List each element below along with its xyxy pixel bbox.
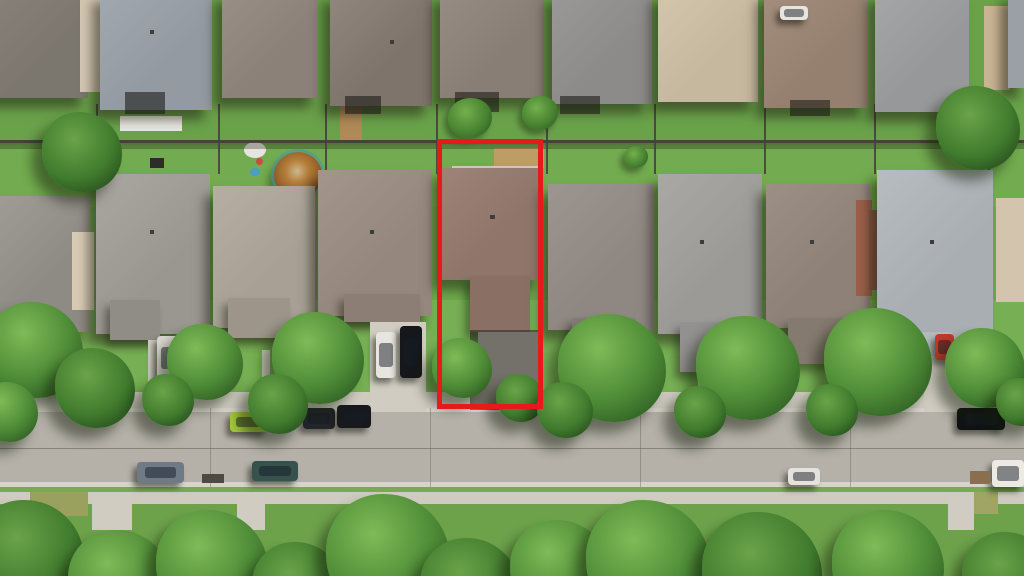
street-tree xyxy=(537,382,593,438)
house-roof-back-row xyxy=(330,0,432,106)
car-windshield xyxy=(997,466,1019,480)
side-fence xyxy=(654,104,656,174)
house-roof-back-row xyxy=(658,0,758,102)
roof-vent xyxy=(810,240,814,244)
car-windshield xyxy=(379,343,393,367)
car-dark xyxy=(303,408,335,429)
car-white-small xyxy=(788,468,820,485)
street-tree xyxy=(806,384,858,436)
car-windshield xyxy=(145,467,177,478)
house-roof-back-row xyxy=(222,0,318,98)
house-roof-back-row xyxy=(440,0,544,98)
side-fence xyxy=(874,104,876,174)
house-wall xyxy=(72,232,94,310)
car-windshield xyxy=(784,9,803,16)
car-black-suv xyxy=(337,405,371,428)
driveway-apron xyxy=(948,492,974,530)
aerial-photo xyxy=(0,0,1024,576)
roof-vent xyxy=(150,230,154,234)
yard-toy xyxy=(256,158,263,165)
car-black-driveway xyxy=(400,326,422,378)
backyard-shed xyxy=(120,116,182,131)
car-gray xyxy=(137,462,184,483)
car-windshield xyxy=(965,413,998,424)
trailer xyxy=(970,471,990,484)
driveway-apron xyxy=(92,492,132,530)
house-roof-front-row xyxy=(548,184,654,330)
dry-patch xyxy=(340,104,362,140)
car-windshield xyxy=(342,411,365,423)
bbq-grill xyxy=(150,158,164,168)
house-wall xyxy=(996,198,1024,302)
storm-drain xyxy=(202,474,224,483)
side-fence xyxy=(764,104,766,174)
street-tree xyxy=(248,374,308,434)
car-windshield xyxy=(259,466,290,476)
car-teal xyxy=(252,461,298,481)
house-roof-back-row xyxy=(552,0,652,104)
house-roof-back-row xyxy=(1008,0,1024,88)
garage-roof xyxy=(344,294,420,322)
roof-vent xyxy=(150,30,154,34)
street-crack xyxy=(430,408,431,488)
car-windshield xyxy=(308,413,330,424)
backyard-tree xyxy=(936,86,1020,170)
car-windshield xyxy=(793,472,815,481)
garage-roof xyxy=(110,300,160,340)
property-boundary-highlight xyxy=(437,139,543,409)
street-seam xyxy=(0,448,1024,449)
house-roof-back-row xyxy=(100,0,212,110)
side-fence xyxy=(218,104,220,174)
street-tree xyxy=(674,386,726,438)
street-crack xyxy=(640,408,641,488)
south-sidewalk xyxy=(0,492,1024,504)
roof-vent xyxy=(700,240,704,244)
car-windshield xyxy=(404,338,419,365)
street-tree xyxy=(142,374,194,426)
yard-toy xyxy=(250,168,260,176)
house-roof-back-row xyxy=(0,0,88,98)
roof-vent xyxy=(370,230,374,234)
roof-vent xyxy=(930,240,934,244)
house-roof-front-row xyxy=(766,184,870,328)
yard-toy xyxy=(244,142,266,158)
truck-white xyxy=(992,460,1024,487)
street-tree xyxy=(55,348,135,428)
house-roof-front-row xyxy=(658,174,762,334)
roof-vent xyxy=(390,40,394,44)
backyard-tree xyxy=(42,112,122,192)
car-white-driveway xyxy=(376,332,396,378)
house-wall xyxy=(984,6,1010,90)
side-fence xyxy=(325,104,327,174)
truck-white-alley xyxy=(780,6,808,20)
house-wall xyxy=(80,0,100,92)
